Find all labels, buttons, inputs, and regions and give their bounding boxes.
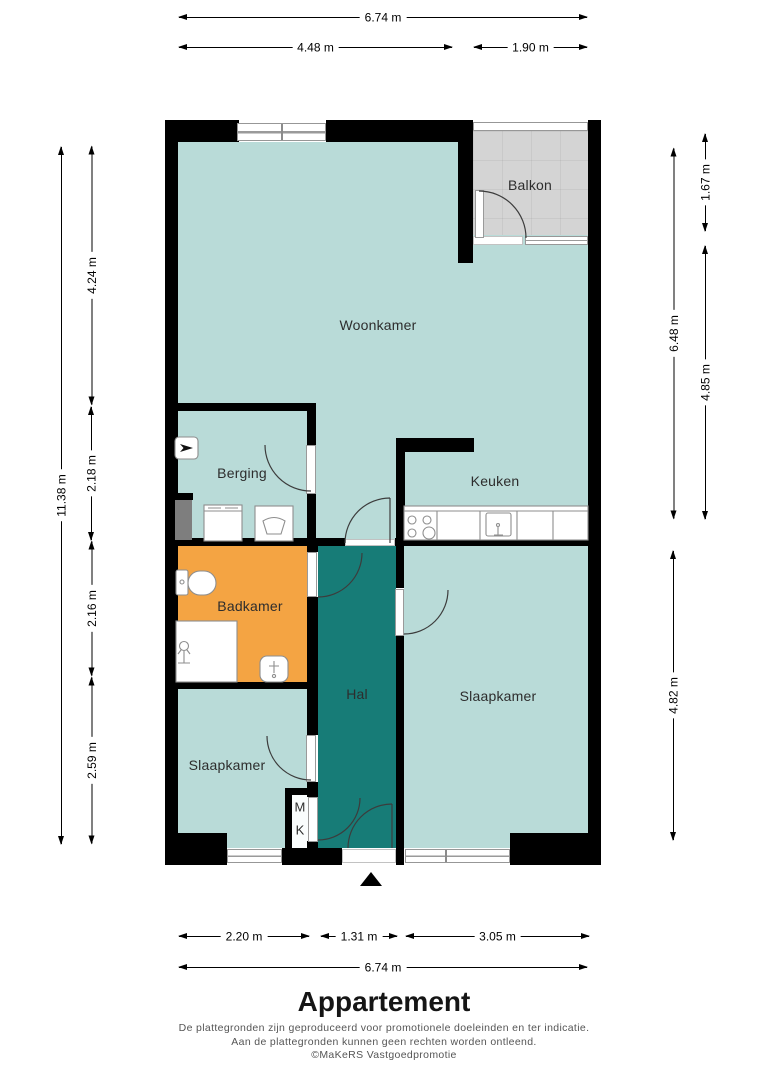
wall-segment (588, 120, 601, 865)
dimension-label: 2.16 m (85, 585, 98, 632)
front-door-opening (342, 849, 396, 863)
wall-segment (307, 493, 316, 540)
door-leaf (306, 445, 316, 494)
page-title: Appartement (0, 986, 768, 1018)
dimension-right-inner-2: 4.82 m (668, 550, 679, 841)
dimension-left-total: 11.38 m (56, 146, 67, 845)
dimension-label: 6.48 m (667, 310, 680, 357)
window-mullion (281, 124, 283, 140)
room-label-balkon: Balkon (508, 177, 552, 193)
wall-segment (326, 120, 458, 142)
wall-segment (396, 438, 474, 452)
dimension-label: 2.18 m (85, 450, 98, 497)
footer-text: De plattegronden zijn geproduceerd voor … (0, 1022, 768, 1063)
dimension-right-inner-1: 6.48 m (669, 148, 680, 520)
door-leaf (308, 797, 318, 842)
room-label-keuken: Keuken (471, 473, 520, 489)
dimension-label: 6.74 m (360, 11, 407, 24)
room-label-slaapkamer-left: Slaapkamer (189, 757, 266, 773)
dimension-bottom-total: 6.74 m (178, 962, 588, 973)
floor-plan-page: Balkon Woonkamer Berging Keuken Badkamer… (0, 0, 768, 1086)
disclaimer-line-1: De plattegronden zijn geproduceerd voor … (0, 1022, 768, 1036)
wall-segment (307, 597, 318, 735)
entrance-marker-icon (360, 872, 382, 886)
dimension-left-3: 2.16 m (87, 541, 98, 677)
wall-segment (510, 833, 601, 865)
disclaimer-line-2: Aan de plattegronden kunnen geen rechten… (0, 1036, 768, 1050)
dimension-left-1: 4.24 m (87, 146, 98, 406)
window (237, 123, 326, 141)
door-leaf (307, 552, 317, 597)
window (227, 849, 282, 863)
wall-segment (165, 833, 227, 865)
duct-shaft (175, 500, 192, 540)
dimension-right-outer-2: 4.85 m (700, 245, 711, 520)
room-label-berging: Berging (217, 465, 267, 481)
wall-segment (307, 403, 316, 445)
dimension-bottom-1: 2.20 m (178, 931, 310, 942)
door-opening (345, 539, 395, 546)
room-label-badkamer: Badkamer (217, 598, 282, 614)
dimension-label: 6.74 m (360, 961, 407, 974)
wall-segment (165, 120, 239, 142)
room-label-meterkast-m: M (294, 800, 305, 815)
wall-segment (396, 636, 404, 865)
dimension-label: 1.67 m (699, 159, 712, 206)
wall-segment (165, 538, 345, 546)
wall-segment (396, 546, 404, 588)
door-leaf (395, 589, 404, 636)
dimension-label: 1.90 m (507, 41, 554, 54)
dimension-left-2: 2.18 m (86, 406, 97, 541)
dimension-label: 11.38 m (55, 469, 68, 521)
window (405, 849, 510, 863)
wall-segment (165, 403, 315, 411)
door-leaf (306, 735, 316, 782)
door-leaf (475, 190, 484, 238)
dimension-left-4: 2.59 m (87, 677, 98, 845)
dimension-right-outer-1: 1.67 m (700, 133, 711, 232)
wall-segment (307, 841, 318, 848)
dimension-label: 4.24 m (85, 252, 98, 299)
dimension-top-right: 1.90 m (473, 42, 588, 53)
dimension-label: 3.05 m (474, 930, 521, 943)
dimension-label: 2.20 m (221, 930, 268, 943)
wall-segment (165, 682, 307, 689)
room-label-woonkamer: Woonkamer (339, 317, 416, 333)
wall-segment (458, 120, 473, 263)
wall-segment (396, 452, 405, 544)
dimension-top-total: 6.74 m (178, 12, 588, 23)
dimension-label: 4.82 m (667, 672, 680, 719)
dimension-label: 2.59 m (85, 737, 98, 784)
wall-segment (282, 848, 342, 865)
room-label-meterkast-k: K (296, 823, 305, 838)
wall-segment (395, 538, 592, 546)
dimension-bottom-2: 1.31 m (320, 931, 398, 942)
dimension-label: 4.48 m (292, 41, 339, 54)
dimension-label: 1.31 m (336, 930, 383, 943)
balcony-window (525, 236, 588, 245)
room-label-hal: Hal (346, 686, 368, 702)
dimension-label: 4.85 m (699, 359, 712, 406)
dimension-bottom-3: 3.05 m (405, 931, 590, 942)
dimension-top-left: 4.48 m (178, 42, 453, 53)
credit-line: ©MaKeRS Vastgoedpromotie (0, 1049, 768, 1063)
room-label-slaapkamer-right: Slaapkamer (460, 688, 537, 704)
balcony-railing (473, 122, 588, 131)
wall-segment (175, 493, 193, 500)
window-mullion (445, 850, 447, 862)
wall-segment (285, 788, 292, 848)
